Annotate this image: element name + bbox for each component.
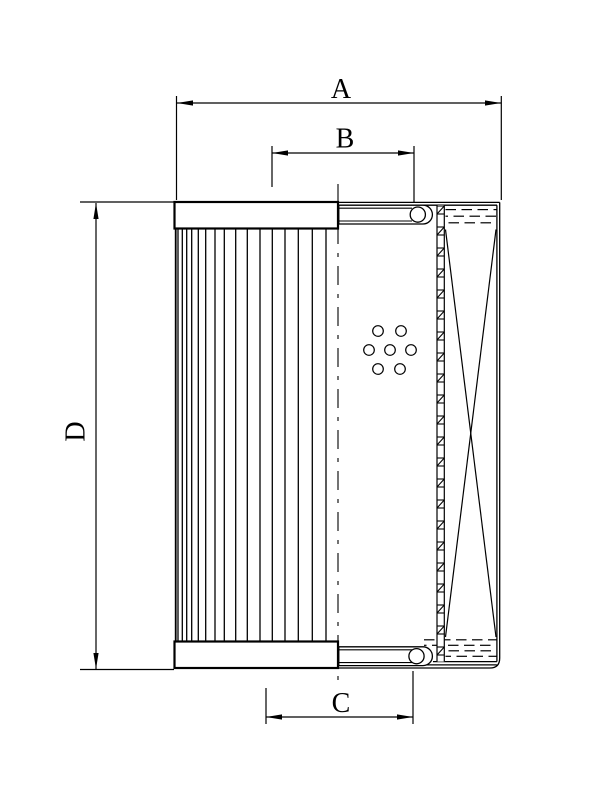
end-cap-top (175, 202, 339, 229)
dimension-C: C (266, 671, 413, 724)
drawing-sheet: A B C D (0, 0, 612, 792)
dimension-B-arrow-right (398, 150, 414, 155)
filter-element-drawing: A B C D (0, 0, 612, 792)
dimension-A-label: A (331, 74, 352, 105)
dimension-D-label: D (61, 421, 92, 441)
dimension-C-arrow-left (266, 714, 282, 719)
potting-adhesive-top (446, 210, 497, 223)
perforation-holes (364, 326, 417, 375)
pleated-media (178, 229, 326, 642)
end-cap-bottom (175, 642, 339, 669)
dimension-D-arrow-bottom (93, 653, 98, 669)
port-tube-bottom (339, 647, 433, 666)
dimension-A-arrow-right (485, 100, 501, 105)
filter-element (175, 184, 500, 680)
media-section-x (446, 230, 497, 638)
outer-shell (338, 202, 500, 668)
dimension-B-label: B (336, 124, 355, 155)
dimension-C-arrow-right (397, 714, 413, 719)
core-tube (437, 205, 445, 662)
potting-adhesive-bottom (424, 640, 497, 657)
dimension-C-label: C (332, 688, 351, 719)
dimension-A-arrow-left (177, 100, 193, 105)
dimension-D: D (61, 202, 175, 670)
dimension-D-arrow-top (93, 203, 98, 219)
dimension-B: B (272, 124, 414, 203)
port-tube-top (339, 205, 433, 224)
dimension-B-arrow-left (272, 150, 288, 155)
